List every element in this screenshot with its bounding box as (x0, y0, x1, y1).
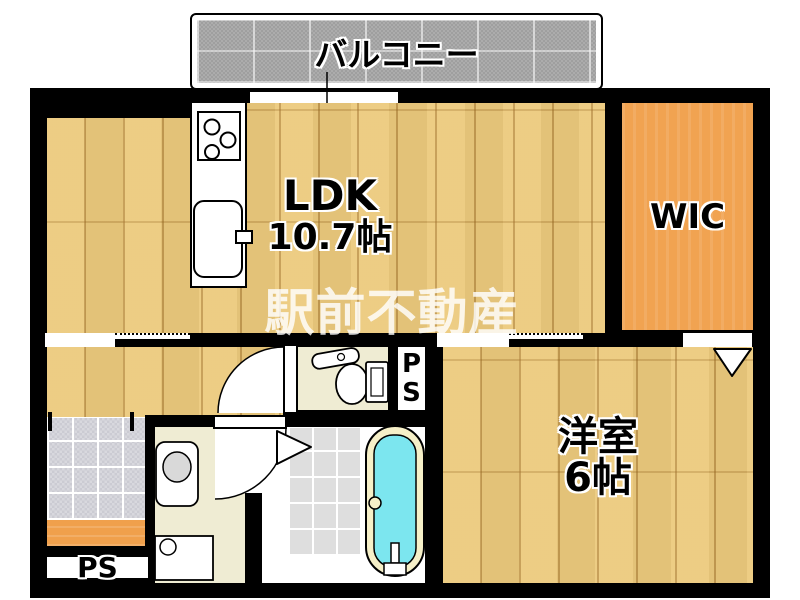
western-room-size-label: 6帖 (564, 458, 632, 499)
gas-stove-icon (198, 112, 240, 160)
ldk-label: LDK (283, 175, 377, 217)
floor-plan: バルコニー PS P S (0, 0, 800, 600)
entrance-tick-right (130, 412, 134, 431)
ldk-label-group: LDK 10.7帖 (230, 174, 430, 260)
watermark-text: 駅前不動産 (262, 273, 522, 345)
washbasin-icon (156, 442, 198, 506)
western-room-label: 洋室 (558, 417, 638, 458)
toilet-icon (311, 347, 388, 404)
western-room-label-group: 洋室 6帖 (498, 412, 698, 504)
ldk-size-label: 10.7帖 (268, 217, 393, 259)
wic-door-triangle-icon (714, 349, 751, 376)
washing-machine-pan-icon (155, 536, 213, 580)
bathtub-icon (366, 426, 424, 576)
folding-door-icon (277, 431, 311, 464)
toilet-door-swing-icon (218, 345, 297, 413)
wic-label-group: WIC (622, 103, 753, 330)
washroom-door-swing-icon (214, 416, 286, 499)
entrance-tick-left (48, 412, 52, 431)
wic-label: WIC (650, 197, 725, 237)
